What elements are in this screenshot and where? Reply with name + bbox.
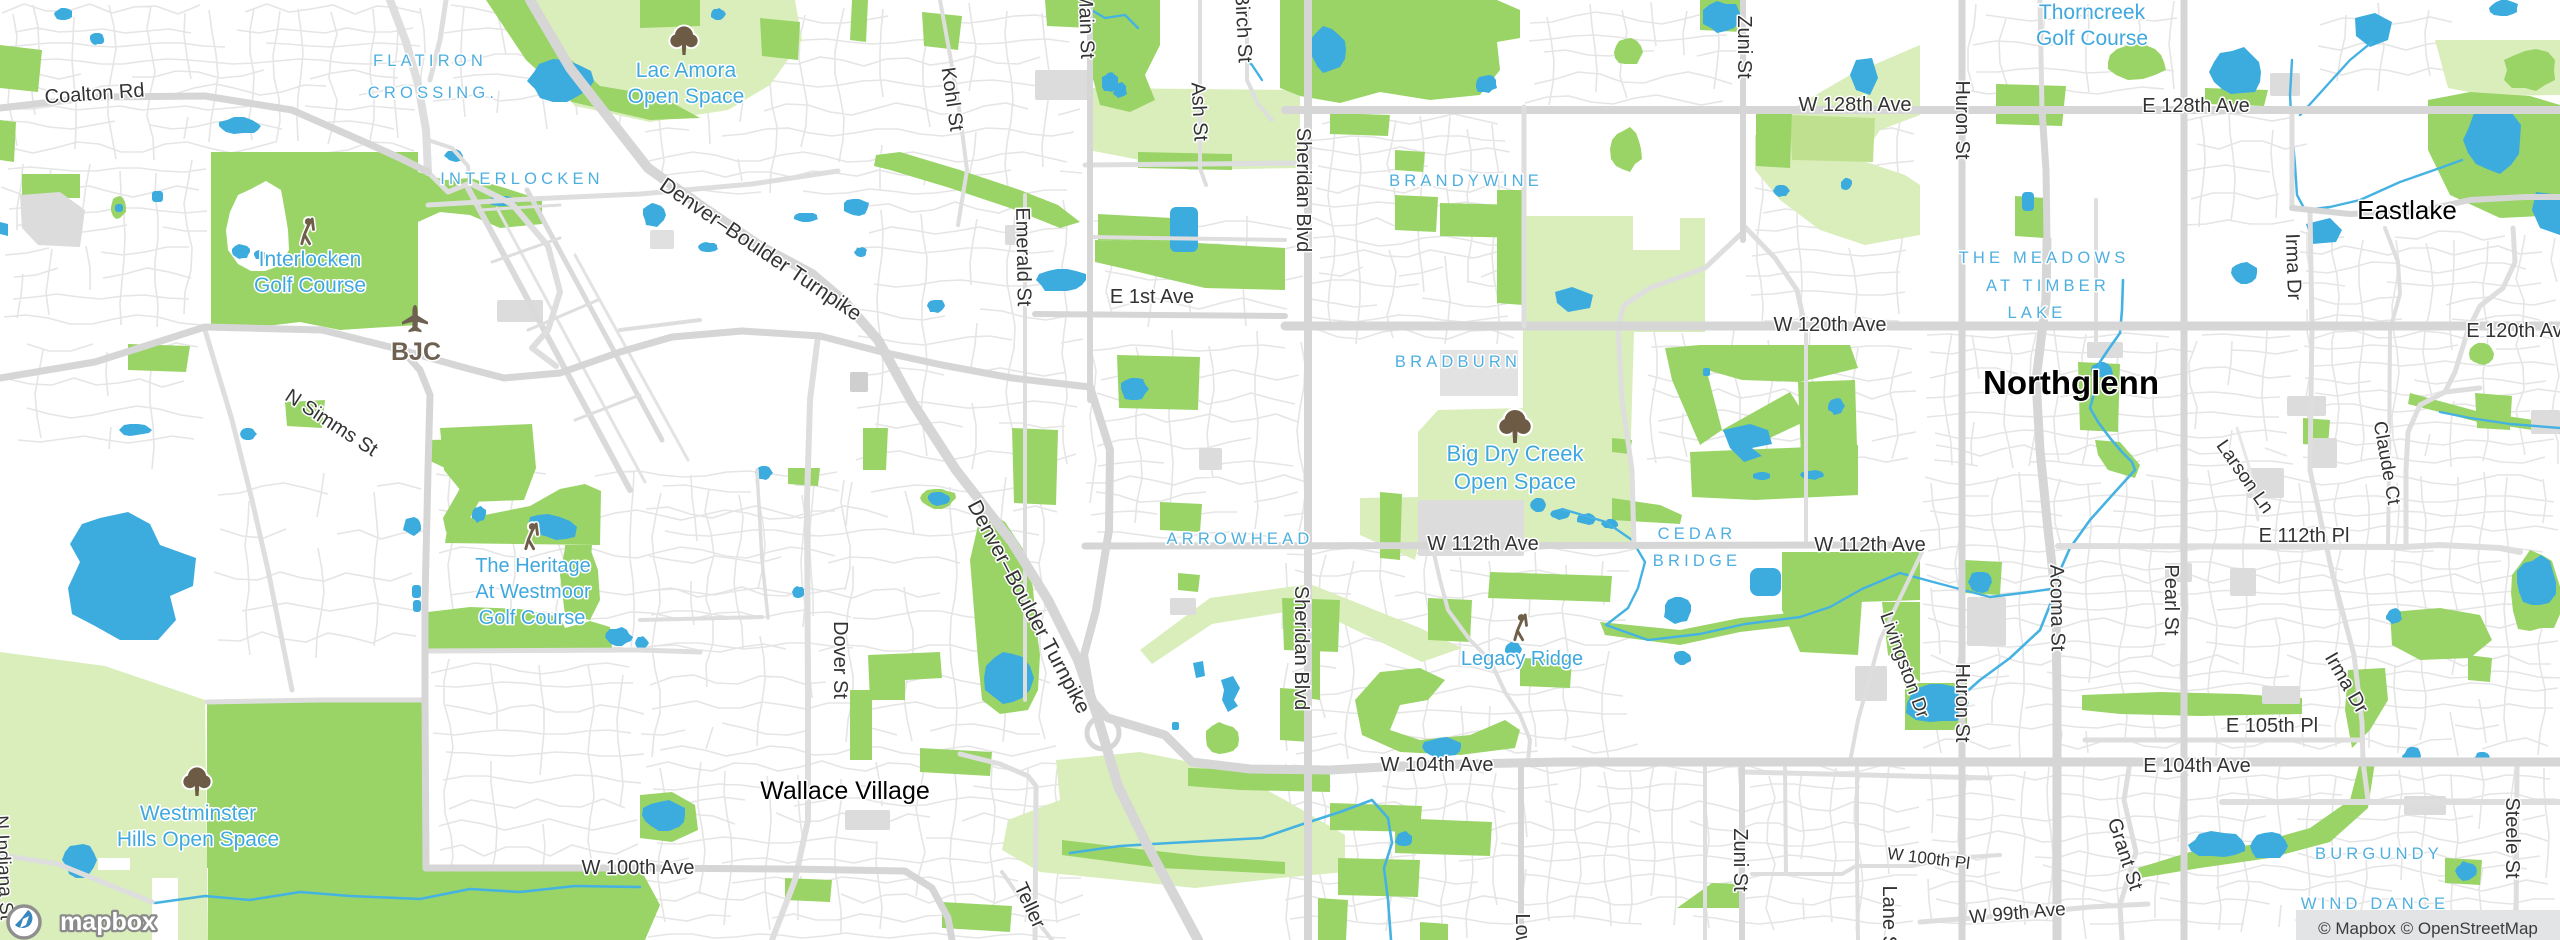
svg-text:At Westmoor: At Westmoor xyxy=(475,581,591,603)
svg-text:Open Space: Open Space xyxy=(628,85,745,108)
svg-text:Ash St: Ash St xyxy=(1186,82,1211,142)
svg-text:Emerald St: Emerald St xyxy=(1011,207,1035,307)
svg-text:BRANDYWINE: BRANDYWINE xyxy=(1389,172,1543,190)
svg-text:mapbox: mapbox xyxy=(60,908,156,936)
svg-text:BRADBURN: BRADBURN xyxy=(1395,353,1521,371)
svg-text:W 100th Ave: W 100th Ave xyxy=(581,857,694,879)
svg-text:Hills Open Space: Hills Open Space xyxy=(117,828,279,851)
svg-text:Lane St: Lane St xyxy=(1878,886,1900,940)
svg-text:Lowell Blvd: Lowell Blvd xyxy=(1511,913,1533,940)
svg-text:Golf Course: Golf Course xyxy=(2036,27,2148,50)
svg-text:W 104th Ave: W 104th Ave xyxy=(1380,754,1493,776)
svg-text:Open Space: Open Space xyxy=(1454,469,1576,494)
svg-text:BRIDGE: BRIDGE xyxy=(1653,552,1741,570)
svg-text:© Mapbox © OpenStreetMap: © Mapbox © OpenStreetMap xyxy=(2318,919,2538,938)
svg-text:Birch St: Birch St xyxy=(1230,0,1256,64)
svg-text:Golf Course: Golf Course xyxy=(254,274,366,297)
svg-text:W 120th Ave: W 120th Ave xyxy=(1773,314,1886,336)
svg-text:Acoma St: Acoma St xyxy=(2045,564,2069,652)
svg-text:Huron St: Huron St xyxy=(1951,664,1973,743)
svg-text:Pearl St: Pearl St xyxy=(2160,564,2182,636)
svg-text:E 120th Ave: E 120th Ave xyxy=(2466,320,2560,342)
svg-text:Golf Course: Golf Course xyxy=(479,607,586,629)
svg-text:Sheridan Blvd: Sheridan Blvd xyxy=(1292,128,1314,253)
svg-text:W 112th Ave: W 112th Ave xyxy=(1814,534,1926,556)
svg-text:CEDAR: CEDAR xyxy=(1658,525,1737,543)
svg-text:Eastlake: Eastlake xyxy=(2357,195,2457,225)
svg-text:Zuni St: Zuni St xyxy=(1729,828,1751,892)
svg-text:Sheridan Blvd: Sheridan Blvd xyxy=(1290,586,1312,711)
svg-text:Thorncreek: Thorncreek xyxy=(2039,1,2146,24)
svg-text:CROSSING.: CROSSING. xyxy=(368,84,498,102)
svg-text:Wallace Village: Wallace Village xyxy=(760,777,930,805)
svg-text:Irma Dr: Irma Dr xyxy=(2281,233,2305,301)
svg-text:Dover St: Dover St xyxy=(829,621,851,699)
svg-text:LAKE: LAKE xyxy=(2008,304,2067,322)
svg-text:BJC: BJC xyxy=(391,338,441,366)
svg-text:Northglenn: Northglenn xyxy=(1983,364,2159,401)
svg-text:Steele St: Steele St xyxy=(2501,797,2523,879)
svg-text:Zuni St: Zuni St xyxy=(1733,15,1755,79)
svg-text:Legacy Ridge: Legacy Ridge xyxy=(1461,648,1583,670)
svg-text:E 1st Ave: E 1st Ave xyxy=(1110,286,1194,308)
svg-text:E 105th Pl: E 105th Pl xyxy=(2226,715,2318,737)
svg-text:BURGUNDY: BURGUNDY xyxy=(2315,845,2443,863)
svg-text:THE MEADOWS: THE MEADOWS xyxy=(1959,249,2130,267)
svg-text:Huron St: Huron St xyxy=(1951,81,1973,160)
svg-text:INTERLOCKEN: INTERLOCKEN xyxy=(440,170,604,188)
svg-text:Westminster: Westminster xyxy=(140,802,256,825)
svg-text:Interlocken: Interlocken xyxy=(259,248,362,271)
svg-text:FLATIRON: FLATIRON xyxy=(373,52,487,70)
svg-text:W 128th Ave: W 128th Ave xyxy=(1798,94,1911,116)
svg-text:W 112th Ave: W 112th Ave xyxy=(1427,533,1539,555)
svg-text:ARROWHEAD: ARROWHEAD xyxy=(1167,530,1314,548)
svg-text:Main St: Main St xyxy=(1074,0,1098,59)
svg-text:AT TIMBER: AT TIMBER xyxy=(1986,277,2110,295)
svg-text:E 128th Ave: E 128th Ave xyxy=(2142,95,2250,117)
svg-text:E 104th Ave: E 104th Ave xyxy=(2143,755,2251,777)
svg-text:E 112th Pl: E 112th Pl xyxy=(2259,525,2350,547)
svg-text:Lac Amora: Lac Amora xyxy=(636,59,737,82)
svg-text:The Heritage: The Heritage xyxy=(475,555,591,577)
svg-text:Big Dry Creek: Big Dry Creek xyxy=(1447,441,1585,466)
